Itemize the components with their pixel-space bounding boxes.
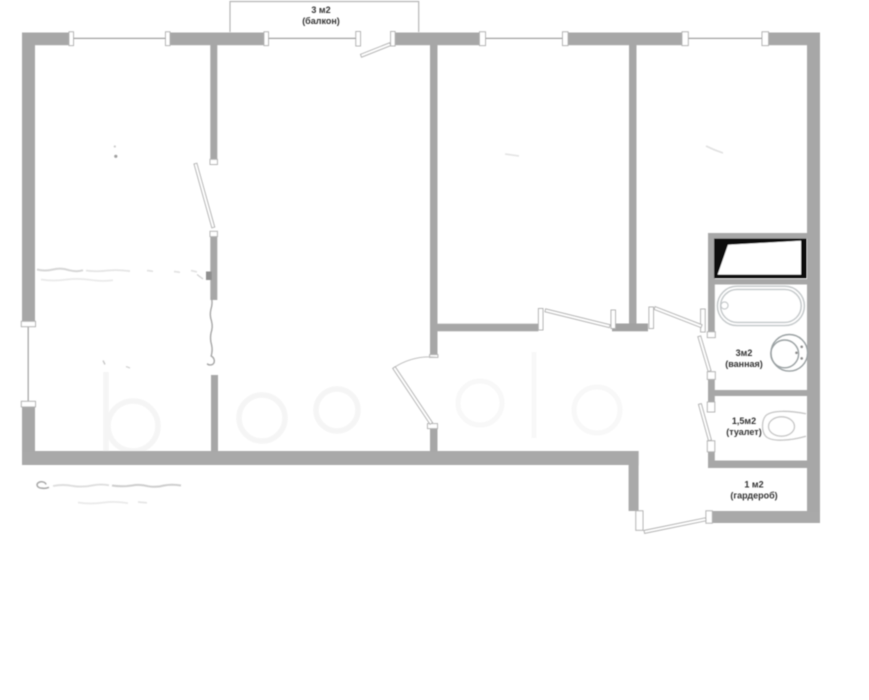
svg-text:1 м2: 1 м2	[744, 480, 763, 490]
svg-text:3 м2: 3 м2	[311, 5, 330, 15]
svg-text:(туалет): (туалет)	[726, 427, 761, 437]
svg-text:3м2: 3м2	[736, 348, 753, 358]
svg-text:(балкон): (балкон)	[302, 16, 340, 26]
svg-text:(гардероб): (гардероб)	[730, 491, 777, 501]
svg-text:(ванная): (ванная)	[725, 359, 763, 369]
svg-text:1,5м2: 1,5м2	[732, 416, 756, 426]
